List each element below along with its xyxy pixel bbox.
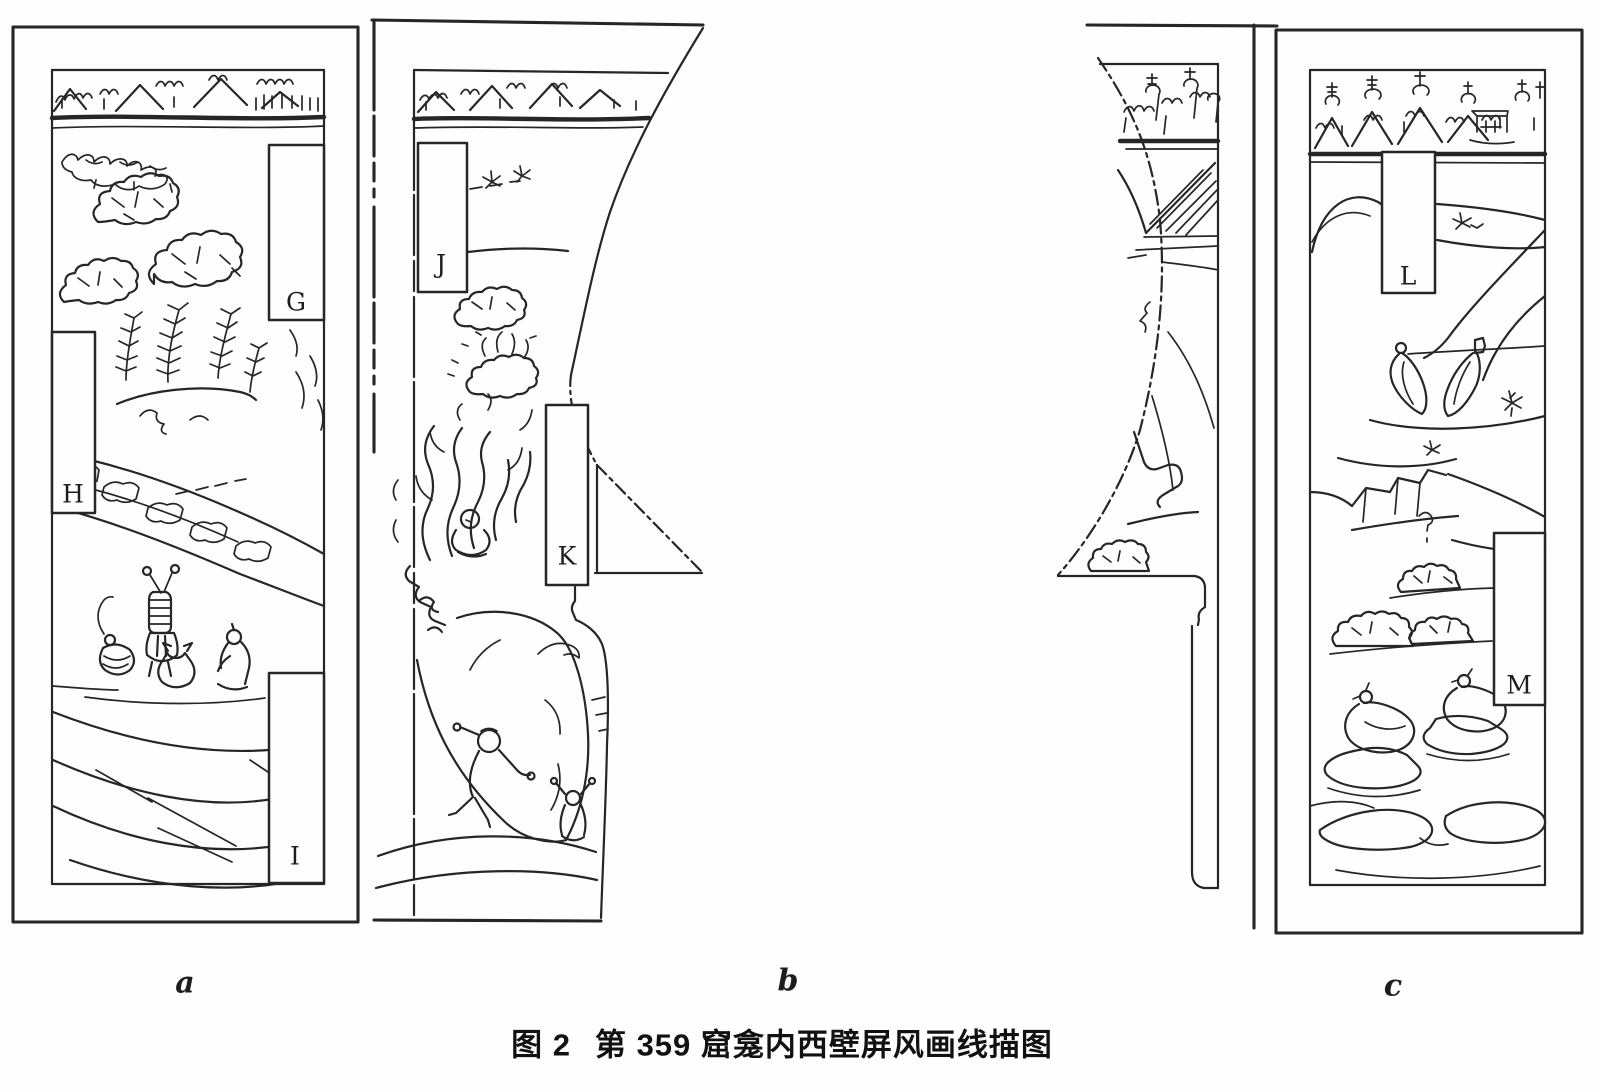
pond-outline-right [457, 612, 588, 840]
panel-c-seated-figures [1325, 669, 1509, 797]
silhouette-triangle-hypotenuse [597, 465, 701, 571]
panel-a-ferns [116, 303, 267, 392]
kneeling-figure-body [218, 624, 250, 689]
figure-torso-stripes [150, 600, 170, 624]
panel-a-drawing [13, 27, 358, 922]
small-building [1470, 111, 1514, 144]
panel-c-bottom-terrain [1310, 802, 1545, 879]
ribbon-terraces [1320, 802, 1545, 849]
mourner-robe-fold [1454, 362, 1470, 404]
terrain-lines [1437, 204, 1545, 248]
mourner-head [1396, 343, 1406, 353]
panel-a-figures [53, 565, 265, 704]
figure-arms-raised [150, 573, 172, 593]
rock-cluster-detail [112, 192, 163, 220]
mourner-robe-fold [1402, 362, 1413, 404]
terrain-sweeps [53, 712, 305, 888]
bottom-terrain-lines [376, 836, 597, 888]
rock-cluster-detail [1103, 551, 1140, 563]
cartouche-letter-M: M [1506, 671, 1532, 700]
cliff-verticals [1363, 478, 1420, 522]
grass-tuft [1453, 213, 1483, 229]
figure-caption-title: 第 359 窟龛内西壁屏风画线描图 [595, 1028, 1053, 1063]
rock-cluster-detail [172, 247, 240, 279]
tree-trunks [62, 94, 318, 111]
panel-a-label: a [175, 966, 194, 1001]
bent-figure-stripes [103, 656, 130, 668]
mourner-robe [1391, 353, 1427, 414]
rock-cluster [466, 355, 538, 398]
fragment-top-line [1087, 25, 1277, 26]
cartouche-letter-H: H [62, 480, 84, 509]
figure-skirt [146, 633, 177, 676]
mountain-hatching [1144, 170, 1218, 237]
crack-mark [1419, 513, 1432, 543]
panel-c-drawing [1276, 30, 1582, 933]
slope-lines [1140, 302, 1214, 490]
ribbon-links [1336, 838, 1540, 878]
stupa-finials [1325, 72, 1544, 105]
cartouche-letter-G: G [286, 288, 306, 317]
band-base-line-2 [52, 126, 324, 128]
silhouette-shoulder-step [572, 587, 608, 918]
panel-a-lower-terrain [53, 712, 305, 888]
pond-inner-curves [470, 640, 579, 810]
hill-rocks [140, 410, 208, 434]
rock-cluster-detail [78, 272, 122, 287]
falling-figure-head [478, 730, 500, 752]
seat-mat [1424, 716, 1508, 754]
falling-figure-limbs [449, 727, 530, 827]
fragment-step-outline [1058, 576, 1218, 888]
panel-c-label: c [1384, 969, 1402, 1004]
panel-b-mountain-band [414, 84, 649, 129]
flame-strokes [422, 426, 530, 560]
grass-tufts [483, 166, 530, 188]
praying-figure-hand [551, 778, 557, 784]
tree-scribbles [420, 84, 636, 111]
figure-caption: 图 2第 359 窟龛内西壁屏风画线描图 [511, 1020, 1053, 1065]
fern [245, 343, 267, 392]
panel-c-stupa-band [1310, 72, 1545, 163]
fern [116, 312, 142, 380]
falling-figure-hand [528, 773, 535, 780]
seated-figure-head [1360, 691, 1372, 703]
figure-in-flames-face [466, 520, 471, 522]
mountain-peaks [1315, 108, 1488, 148]
cartouche-letter-I: I [290, 842, 300, 871]
hill-crest [117, 388, 256, 404]
panel-a-mountain-band [52, 76, 324, 129]
band-base-line [52, 117, 324, 119]
mountain-peaks [418, 84, 620, 112]
panel-b-outer-top [372, 20, 703, 25]
panel-b-bottom [374, 920, 601, 921]
panel-b-drawing [372, 20, 703, 921]
buddha-silhouette-right-curve [1058, 58, 1162, 575]
figure-caption-number: 图 2 [511, 1028, 571, 1063]
figure-striped-torso [149, 592, 171, 633]
cliff-ledges [1310, 470, 1446, 506]
praying-figure-head [566, 791, 580, 805]
panel-b-right-fragment [1058, 25, 1277, 928]
seat-mat [1325, 748, 1421, 788]
terrain-lines [1128, 246, 1218, 270]
cartouche-letter-L: L [1400, 262, 1417, 291]
fragment-terrain [1058, 163, 1218, 888]
fern [210, 308, 240, 378]
mourner-robe [1444, 352, 1480, 416]
eared-pot [158, 643, 194, 687]
panel-c-mourners [1338, 338, 1545, 466]
rock-profile [1128, 432, 1198, 524]
burning-tree-strokes [448, 332, 536, 376]
panel-b-lower-scene [376, 612, 608, 888]
cartouche-letter-J: J [436, 250, 446, 279]
cliff-strokes [290, 330, 323, 430]
ground-dashes [470, 181, 520, 189]
fragment-tree-band [1120, 68, 1220, 149]
rock-cluster-detail [472, 297, 515, 310]
bent-figure-arm [98, 597, 113, 634]
panel-b-label: b [778, 964, 799, 999]
band-base-line-2 [414, 127, 643, 128]
praying-figure-hand [589, 778, 595, 784]
ground-line [468, 248, 568, 252]
fern [157, 303, 188, 382]
silhouette-curve [571, 28, 703, 375]
panel-b-inner-top [414, 70, 668, 73]
line-drawing [0, 0, 1600, 1092]
cartouche-letter-K: K [558, 542, 577, 571]
ridge-lines [1424, 230, 1545, 380]
terrain-line [1310, 802, 1374, 808]
falling-figure-hand [454, 724, 461, 731]
figure-hand [143, 567, 151, 575]
band-base-line [414, 118, 649, 119]
figure-2-line-drawing: G H I J K L M a b c 图 2第 359 窟龛内西壁屏风画线描图 [0, 0, 1600, 1092]
rocks-below-flames [406, 566, 445, 632]
panel-a-rock-clusters [60, 173, 242, 303]
figure-hand [171, 565, 179, 573]
pond-dashes [592, 697, 608, 731]
ground-curves [1338, 416, 1545, 466]
rock-row-detail [1390, 571, 1500, 598]
kneeling-figure-head [227, 630, 241, 644]
stream-dashes [176, 479, 246, 494]
seated-figure-arm [1365, 722, 1405, 729]
